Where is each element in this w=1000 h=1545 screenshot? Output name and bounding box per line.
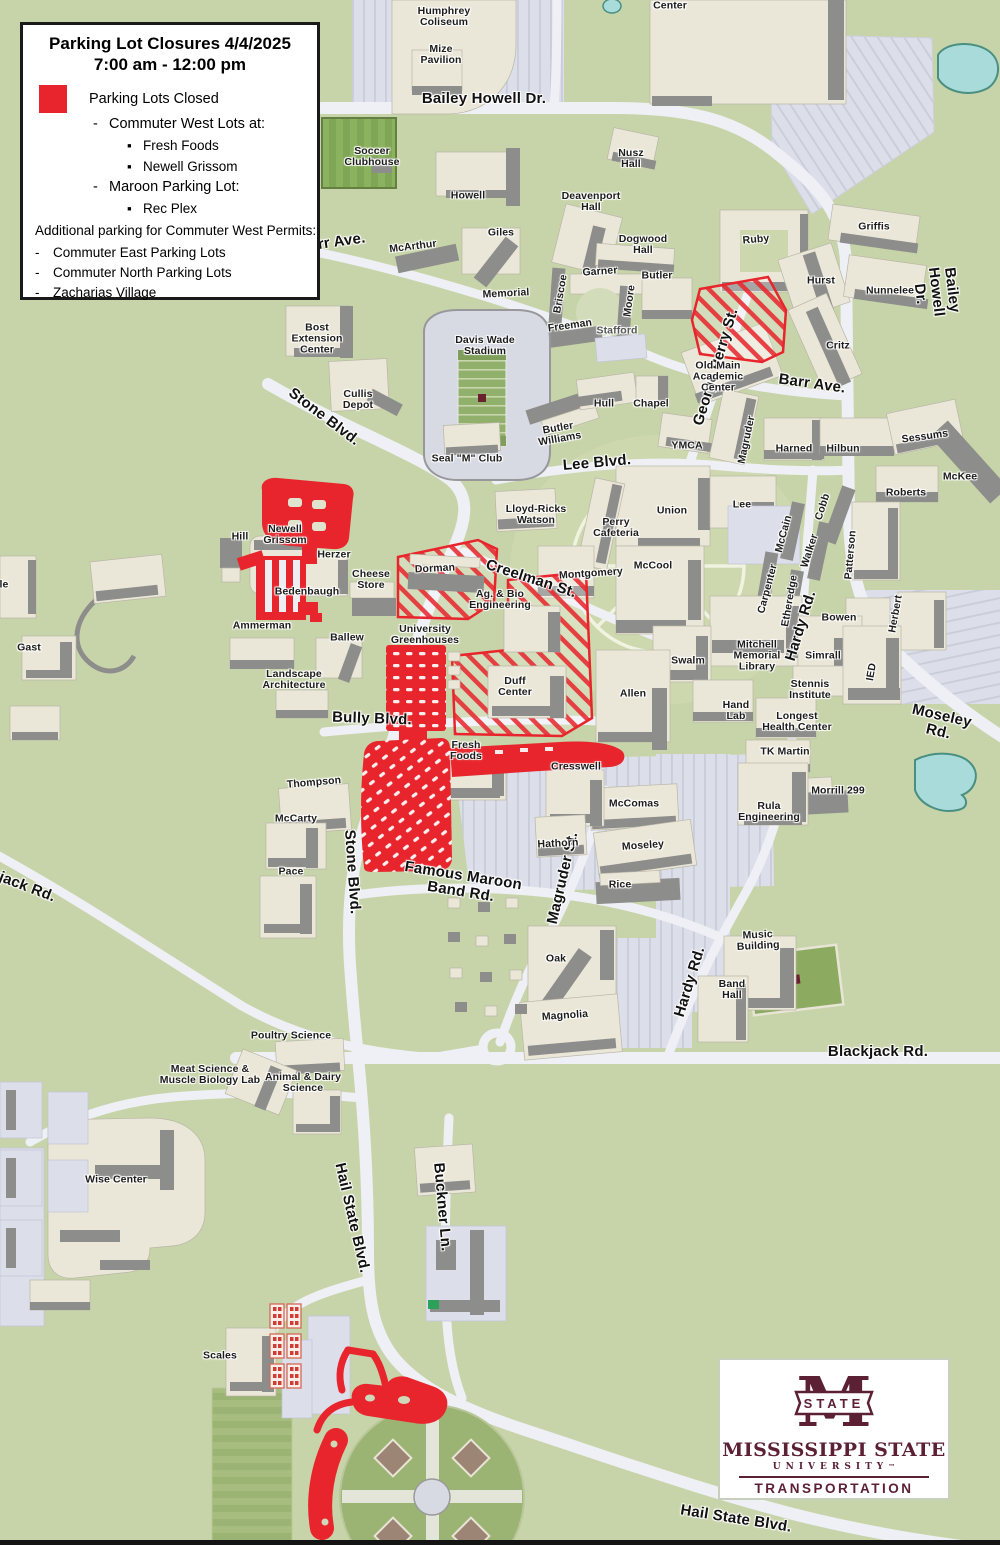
msu-transportation-logo: M STATE MISSISSIPPI STATE UNIVERSITY™ TR…	[718, 1358, 950, 1500]
legend-additional-item: -Commuter North Parking Lots	[35, 263, 315, 283]
legend-closed-item: ▪Fresh Foods	[23, 135, 317, 156]
legend-closed-list: -Commuter West Lots at:▪Fresh Foods▪Newe…	[23, 114, 317, 219]
legend-closed-item: ▪Newell Grissom	[23, 156, 317, 177]
legend-closed-item: -Commuter West Lots at:	[23, 114, 317, 135]
legend-title: Parking Lot Closures 4/4/2025 7:00 am - …	[23, 33, 317, 76]
legend-closed-item: ▪Rec Plex	[23, 198, 317, 219]
map-bottom-border	[0, 1540, 1000, 1545]
legend-closed-label: Parking Lots Closed	[89, 91, 219, 107]
logo-school-name: MISSISSIPPI STATE	[720, 1439, 948, 1461]
legend-closed-item: -Maroon Parking Lot:	[23, 177, 317, 198]
legend-additional-list: -Commuter East Parking Lots-Commuter Nor…	[35, 243, 315, 303]
logo-divider	[739, 1476, 929, 1478]
logo-university-line: UNIVERSITY™	[720, 1462, 948, 1472]
logo-dept: TRANSPORTATION	[720, 1481, 948, 1496]
state-banner-text: STATE	[804, 1396, 865, 1411]
closed-lot-swatch	[39, 85, 67, 113]
legend-additional-heading: Additional parking for Commuter West Per…	[35, 223, 316, 238]
msu-m-state-mark: M STATE	[774, 1364, 894, 1436]
legend-additional-item: -Commuter East Parking Lots	[35, 243, 315, 263]
campus-map-flyer: .b{fill:#ebe7d8;stroke:#b9b6a7;stroke-wi…	[0, 0, 1000, 1545]
legend-box: Parking Lot Closures 4/4/2025 7:00 am - …	[20, 22, 320, 300]
legend-additional-item: -Zacharias Village	[35, 283, 315, 303]
